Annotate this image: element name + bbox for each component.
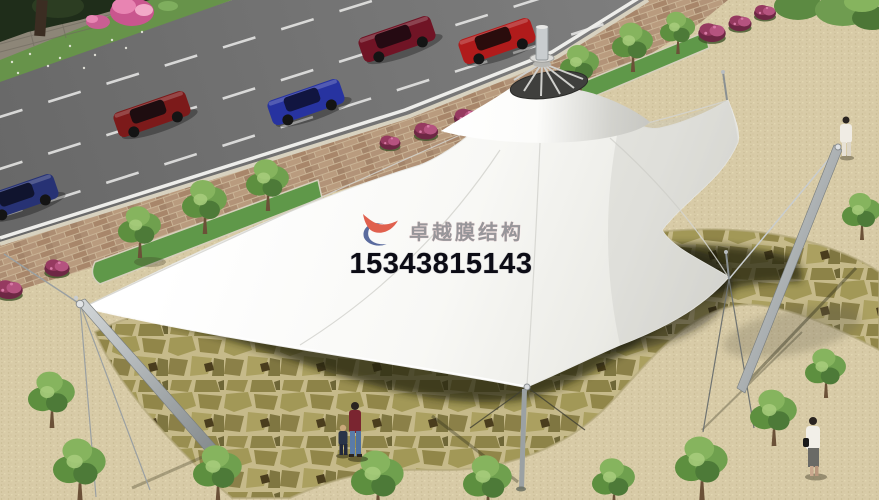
apex-finial: [536, 26, 548, 60]
architectural-render: 卓越膜结构 15343815143: [0, 0, 879, 500]
scene-svg: [0, 0, 879, 500]
